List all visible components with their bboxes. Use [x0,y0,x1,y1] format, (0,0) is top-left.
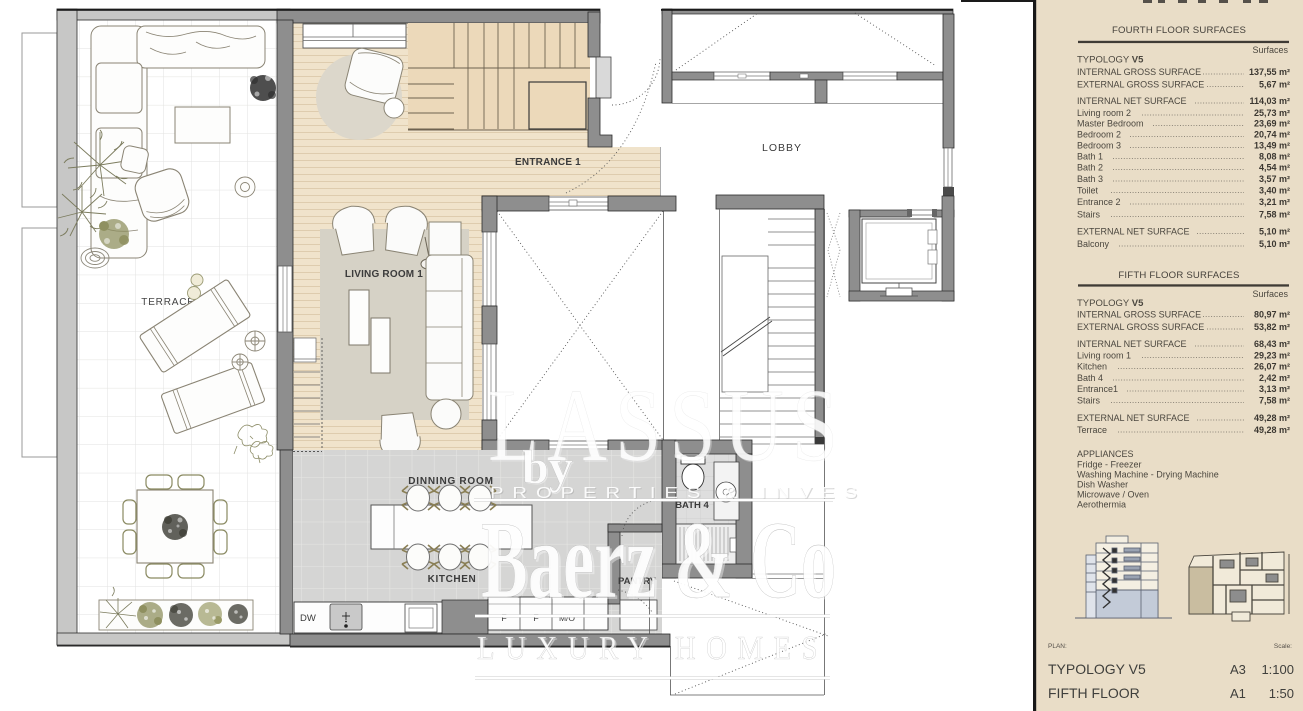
svg-text:29,23 m²: 29,23 m² [1254,351,1290,361]
svg-text:EXTERNAL NET SURFACE: EXTERNAL NET SURFACE [1077,227,1190,237]
svg-text:INTERNAL NET SURFACE: INTERNAL NET SURFACE [1077,96,1187,106]
svg-text:Living room 1: Living room 1 [1077,351,1131,361]
svg-text:26,07 m²: 26,07 m² [1254,362,1290,372]
svg-text:Fridge - Freezer: Fridge - Freezer [1077,460,1142,470]
svg-text:68,43 m²: 68,43 m² [1254,339,1290,349]
svg-text:Stairs: Stairs [1077,210,1101,220]
svg-text:Surfaces: Surfaces [1252,45,1288,55]
svg-text:1:50: 1:50 [1269,686,1294,701]
svg-text:25,73 m²: 25,73 m² [1254,108,1290,118]
svg-text:FIFTH FLOOR: FIFTH FLOOR [1048,685,1140,701]
svg-text:APPLIANCES: APPLIANCES [1077,449,1134,459]
svg-text:Entrance 2: Entrance 2 [1077,197,1121,207]
svg-text:Washing Machine - Drying Machi: Washing Machine - Drying Machine [1077,470,1219,480]
svg-text:7,58 m²: 7,58 m² [1259,396,1290,406]
svg-text:2,42 m²: 2,42 m² [1259,373,1290,383]
svg-text:Balcony: Balcony [1077,239,1110,249]
svg-text:PLAN:: PLAN: [1048,643,1067,650]
svg-text:Microwave / Oven: Microwave / Oven [1077,490,1149,500]
svg-text:7,58 m²: 7,58 m² [1259,210,1290,220]
svg-text:Toilet: Toilet [1077,186,1099,196]
svg-text:3,57 m²: 3,57 m² [1259,174,1290,184]
svg-text:TYPOLOGY V5: TYPOLOGY V5 [1048,661,1146,677]
svg-text:3,40 m²: 3,40 m² [1259,186,1290,196]
svg-text:TYPOLOGY V5: TYPOLOGY V5 [1077,298,1144,309]
svg-text:Master Bedroom: Master Bedroom [1077,119,1144,129]
svg-text:Entrance1: Entrance1 [1077,384,1118,394]
svg-text:137,55 m²: 137,55 m² [1249,67,1290,77]
svg-text:LUXURY HOMES: LUXURY HOMES [477,630,828,667]
svg-text:EXTERNAL NET SURFACE: EXTERNAL NET SURFACE [1077,413,1190,423]
svg-text:Bath 2: Bath 2 [1077,163,1103,173]
svg-text:5,10 m²: 5,10 m² [1259,227,1290,237]
svg-text:Baerz & Co: Baerz & Co [481,499,836,621]
svg-text:13,49 m²: 13,49 m² [1254,141,1290,151]
svg-text:5,10 m²: 5,10 m² [1259,239,1290,249]
svg-text:1:100: 1:100 [1261,662,1294,677]
svg-text:A1: A1 [1230,686,1246,701]
svg-text:8,08 m²: 8,08 m² [1259,152,1290,162]
svg-text:Bedroom 2: Bedroom 2 [1077,130,1121,140]
svg-text:LIVING ROOM 1: LIVING ROOM 1 [345,269,423,280]
svg-text:EXTERNAL GROSS SURFACE: EXTERNAL GROSS SURFACE [1077,80,1204,90]
svg-text:KITCHEN: KITCHEN [428,574,477,585]
svg-text:INTERNAL GROSS SURFACE: INTERNAL GROSS SURFACE [1077,67,1201,77]
svg-text:ENTRANCE 1: ENTRANCE 1 [515,157,581,168]
svg-text:Aerothermia: Aerothermia [1077,500,1126,510]
svg-text:Terrace: Terrace [1077,425,1107,435]
svg-text:114,03 m²: 114,03 m² [1249,96,1290,106]
svg-text:Bedroom 3: Bedroom 3 [1077,141,1121,151]
svg-text:Surfaces: Surfaces [1252,289,1288,299]
svg-text:Bath 3: Bath 3 [1077,174,1103,184]
svg-text:Bath 1: Bath 1 [1077,152,1103,162]
svg-text:Scale:: Scale: [1274,643,1292,650]
svg-text:FOURTH FLOOR SURFACES: FOURTH FLOOR SURFACES [1112,25,1246,36]
svg-text:INTERNAL GROSS SURFACE: INTERNAL GROSS SURFACE [1077,310,1201,320]
svg-text:Living room 2: Living room 2 [1077,108,1131,118]
svg-text:Stairs: Stairs [1077,396,1101,406]
svg-text:20,74 m²: 20,74 m² [1254,130,1290,140]
svg-text:Dish Washer: Dish Washer [1077,480,1128,490]
svg-text:Kitchen: Kitchen [1077,362,1107,372]
svg-text:4,54 m²: 4,54 m² [1259,163,1290,173]
svg-text:DW: DW [300,613,316,624]
svg-text:FIFTH FLOOR SURFACES: FIFTH FLOOR SURFACES [1118,270,1239,281]
svg-text:TYPOLOGY V5: TYPOLOGY V5 [1077,55,1144,66]
svg-text:5,67 m²: 5,67 m² [1259,80,1290,90]
svg-text:3,13 m²: 3,13 m² [1259,384,1290,394]
svg-text:Bath 4: Bath 4 [1077,373,1103,383]
svg-text:53,82 m²: 53,82 m² [1254,322,1290,332]
svg-text:80,97 m²: 80,97 m² [1254,310,1290,320]
svg-text:49,28 m²: 49,28 m² [1254,413,1290,423]
svg-text:49,28 m²: 49,28 m² [1254,425,1290,435]
svg-text:LOBBY: LOBBY [762,142,802,154]
svg-text:3,21 m²: 3,21 m² [1259,197,1290,207]
svg-text:A3: A3 [1230,662,1246,677]
svg-text:INTERNAL NET SURFACE: INTERNAL NET SURFACE [1077,339,1187,349]
svg-text:EXTERNAL GROSS SURFACE: EXTERNAL GROSS SURFACE [1077,322,1204,332]
svg-text:23,69 m²: 23,69 m² [1254,119,1290,129]
